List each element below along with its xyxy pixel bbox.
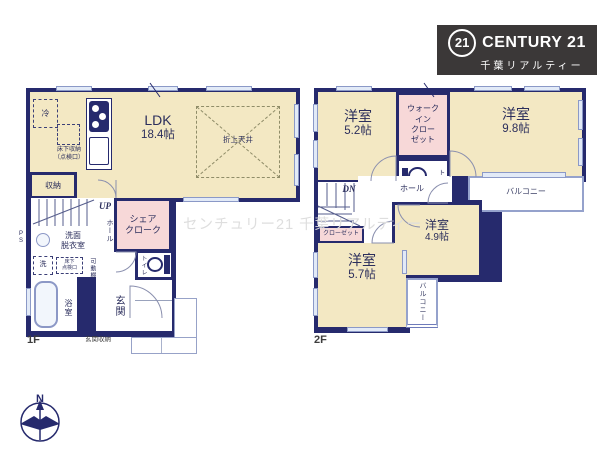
- stove-burner-icon: [92, 105, 99, 112]
- bathroom-label: 浴室: [59, 290, 73, 326]
- window: [56, 86, 92, 91]
- window: [183, 197, 239, 202]
- century21-badge-icon: 21: [448, 29, 476, 57]
- entrance-label: 玄関: [107, 287, 124, 325]
- window: [474, 86, 512, 91]
- fridge-space: 冷: [33, 99, 58, 128]
- storage-label: 収納: [45, 181, 61, 191]
- ldk-name: LDK: [144, 112, 171, 129]
- room-name: 洋室: [344, 108, 372, 125]
- window: [313, 104, 318, 132]
- century21-logo: 21 CENTURY 21 千葉リアルティー: [437, 25, 597, 75]
- century21-logo-row: 21 CENTURY 21: [448, 29, 586, 57]
- room-name: 洋室: [425, 218, 449, 232]
- underfloor-storage-label: 床下収納 （点検口）: [38, 147, 100, 162]
- watermark-text: センチュリー21 千葉リアルティー: [183, 213, 422, 234]
- washroom-label: 洗面 脱衣室: [50, 231, 96, 251]
- window: [313, 288, 318, 316]
- room-storage: 収納: [29, 172, 77, 199]
- ldk-size: 18.4帖: [141, 129, 175, 143]
- coffered-ceiling-text: 折上天井: [221, 135, 255, 144]
- ldk-label: LDK 18.4帖: [112, 112, 204, 143]
- room-west-9-8-label: 洋室 9.8帖: [450, 106, 582, 137]
- window: [347, 327, 388, 332]
- window: [313, 252, 318, 278]
- window: [148, 86, 178, 91]
- walkin-closet-label: ウォーク イン クロー ゼット: [407, 104, 439, 146]
- badge-number: 21: [455, 35, 469, 50]
- toilet-tank-icon: [164, 255, 170, 274]
- washer-space: 洗: [33, 256, 53, 275]
- underfloor-hatch-label: 床下 点検口: [62, 260, 77, 272]
- room-size: 4.9帖: [425, 232, 449, 244]
- bathtub-icon: [34, 281, 58, 328]
- room-size: 9.8帖: [502, 123, 530, 137]
- balcony-top-label: バルコニー: [468, 187, 584, 197]
- coffered-ceiling-label: 折上天井: [196, 135, 280, 144]
- balcony-side-label: バルコニー: [417, 282, 427, 322]
- window: [26, 288, 31, 316]
- floor1-label: 1F: [27, 334, 40, 346]
- window: [313, 140, 318, 168]
- logo-sub-text: 千葉リアルティー: [450, 57, 583, 72]
- stairs-up-label: UP: [94, 201, 116, 212]
- hall-label-1f: ホール: [100, 210, 113, 252]
- compass-north-icon: N: [14, 386, 66, 448]
- pipe-space-label: P S: [16, 231, 26, 245]
- window: [524, 86, 560, 91]
- porch-step: [131, 337, 197, 354]
- fridge-label: 冷: [42, 109, 50, 119]
- window: [294, 104, 299, 138]
- window: [206, 86, 252, 91]
- room-west-5-2-label: 洋室 5.2帖: [318, 108, 398, 139]
- toilet-icon: [147, 257, 163, 272]
- underfloor-storage-box: [57, 124, 80, 145]
- stairs-down-label: DN: [336, 184, 362, 195]
- balcony-side: バルコニー: [406, 278, 438, 328]
- window: [578, 100, 583, 130]
- room-west-5-7-label: 洋室 5.7帖: [318, 252, 406, 283]
- window: [578, 138, 583, 166]
- entrance-storage-label: 玄関収納: [76, 336, 120, 344]
- entrance-step-line: [135, 300, 172, 301]
- room-name: 洋室: [502, 106, 530, 123]
- underfloor-hatch: 床下 点検口: [56, 257, 83, 274]
- window: [482, 172, 566, 178]
- room-name: 洋室: [348, 252, 376, 269]
- room-share-cloak: シェア クローク: [114, 198, 172, 252]
- logo-brand-text: CENTURY 21: [482, 34, 586, 52]
- movable-shelf-label: 可動棚: [84, 250, 95, 286]
- room-size: 5.2帖: [344, 125, 372, 139]
- washer-label: 洗: [40, 261, 47, 270]
- stove-icon: [89, 101, 109, 132]
- floorplan-canvas: 冷 床下収納 （点検口） LDK 18.4帖 折上天井 収納 シェア クローク …: [0, 0, 600, 450]
- room-walkin-closet: ウォーク イン クロー ゼット: [396, 92, 450, 158]
- floor2-label: 2F: [314, 334, 327, 346]
- room-size: 5.7帖: [348, 269, 376, 283]
- window: [294, 154, 299, 186]
- share-cloak-label: シェア クローク: [125, 214, 161, 237]
- hall-label-2f: ホール: [390, 184, 434, 194]
- window: [336, 86, 372, 91]
- porch-divider-line: [161, 338, 162, 353]
- toilet-label-1f: トイレ: [136, 252, 146, 279]
- washbasin-icon: [36, 233, 50, 247]
- stove-burner-icon: [92, 121, 99, 128]
- window: [402, 250, 407, 274]
- stove-burner-icon: [99, 113, 106, 120]
- stairs-up: [31, 198, 96, 227]
